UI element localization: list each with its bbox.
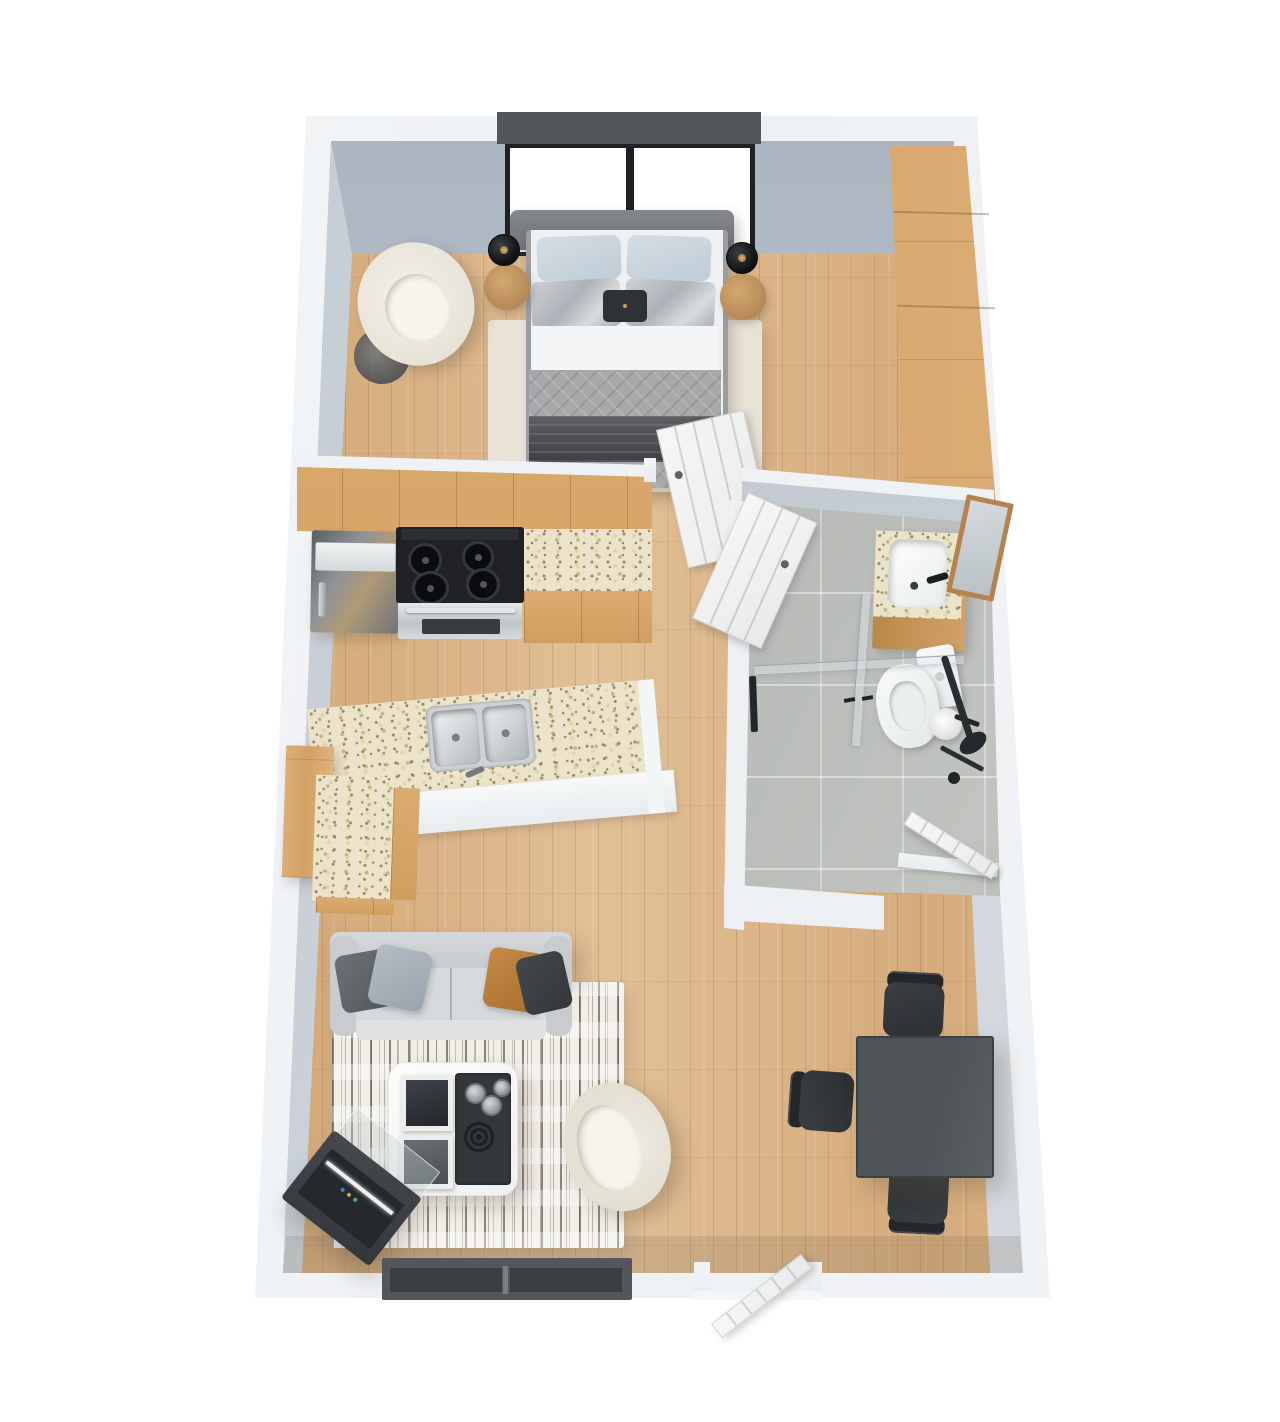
toilet-paper-holder — [930, 708, 962, 740]
sink-drain-left — [452, 733, 461, 742]
armchair-bedroom-cushion — [376, 266, 458, 350]
bed-accent-pillow — [603, 290, 647, 322]
oven-handle — [406, 608, 516, 613]
window-bottom-divider — [503, 1266, 508, 1294]
window-bottom-pane-right — [510, 1268, 622, 1292]
fireplace-button-blue — [340, 1187, 346, 1193]
fireplace-button-gold — [346, 1192, 352, 1198]
toilet-seat — [886, 678, 930, 733]
counter-cabinet-front — [524, 591, 652, 643]
double-sink — [425, 698, 536, 773]
oven-front — [398, 603, 522, 639]
cooktop — [396, 527, 524, 603]
fireplace-button-green — [352, 1197, 358, 1203]
table-lamp-right — [726, 242, 758, 274]
sink-basin-right — [481, 703, 530, 763]
fireplace-led-strip — [325, 1160, 394, 1215]
nightstand-left — [484, 264, 530, 310]
tray-bowl — [461, 1119, 497, 1155]
peninsula-wood-side — [390, 788, 420, 901]
shower-valve — [948, 772, 960, 784]
table-lamp-left — [488, 234, 520, 266]
cup-2 — [481, 1095, 502, 1116]
toilet-flush-button — [935, 671, 945, 681]
window-bottom — [382, 1258, 632, 1300]
nightstand-right — [720, 274, 766, 320]
armchair-living-cushion — [568, 1098, 651, 1199]
refrigerator-handle — [318, 582, 326, 616]
serving-tray — [455, 1073, 511, 1185]
bedroom-doorjamb-left — [644, 458, 656, 482]
bed-pillow-right — [626, 235, 711, 282]
refrigerator — [310, 530, 400, 634]
cup-3 — [493, 1079, 511, 1097]
bedroom-door-handle — [674, 470, 684, 480]
stove — [396, 527, 524, 639]
dining-table — [856, 1036, 994, 1178]
chair-north-seat — [882, 981, 945, 1039]
sink-drain-right — [501, 729, 510, 738]
bathroom-door-handle — [780, 559, 791, 570]
sofa-seat-split — [450, 968, 452, 1022]
chair-west-seat — [798, 1070, 855, 1134]
dining-chair-north — [880, 970, 947, 1039]
burner-3 — [412, 571, 449, 605]
peninsula-wood-front — [316, 897, 395, 916]
accent-pillow-button — [623, 304, 627, 308]
refrigerator-top — [315, 542, 395, 571]
bed-pillow-left — [536, 235, 621, 282]
window-top-header — [497, 112, 761, 144]
sofa-front-edge — [356, 1020, 546, 1040]
peninsula-granite — [312, 775, 396, 904]
book-1-cover — [406, 1080, 448, 1126]
counter-granite — [524, 529, 652, 591]
dining-chair-west — [787, 1065, 855, 1135]
bed-sheet — [533, 326, 719, 372]
cooktop-control-strip — [402, 529, 518, 540]
sink-basin-left — [430, 708, 481, 768]
floorplan-render — [0, 0, 1280, 1422]
coffee-table-book-1 — [401, 1075, 453, 1131]
window-bottom-pane-left — [390, 1268, 502, 1292]
burner-4 — [466, 568, 500, 601]
oven-window — [422, 619, 500, 634]
